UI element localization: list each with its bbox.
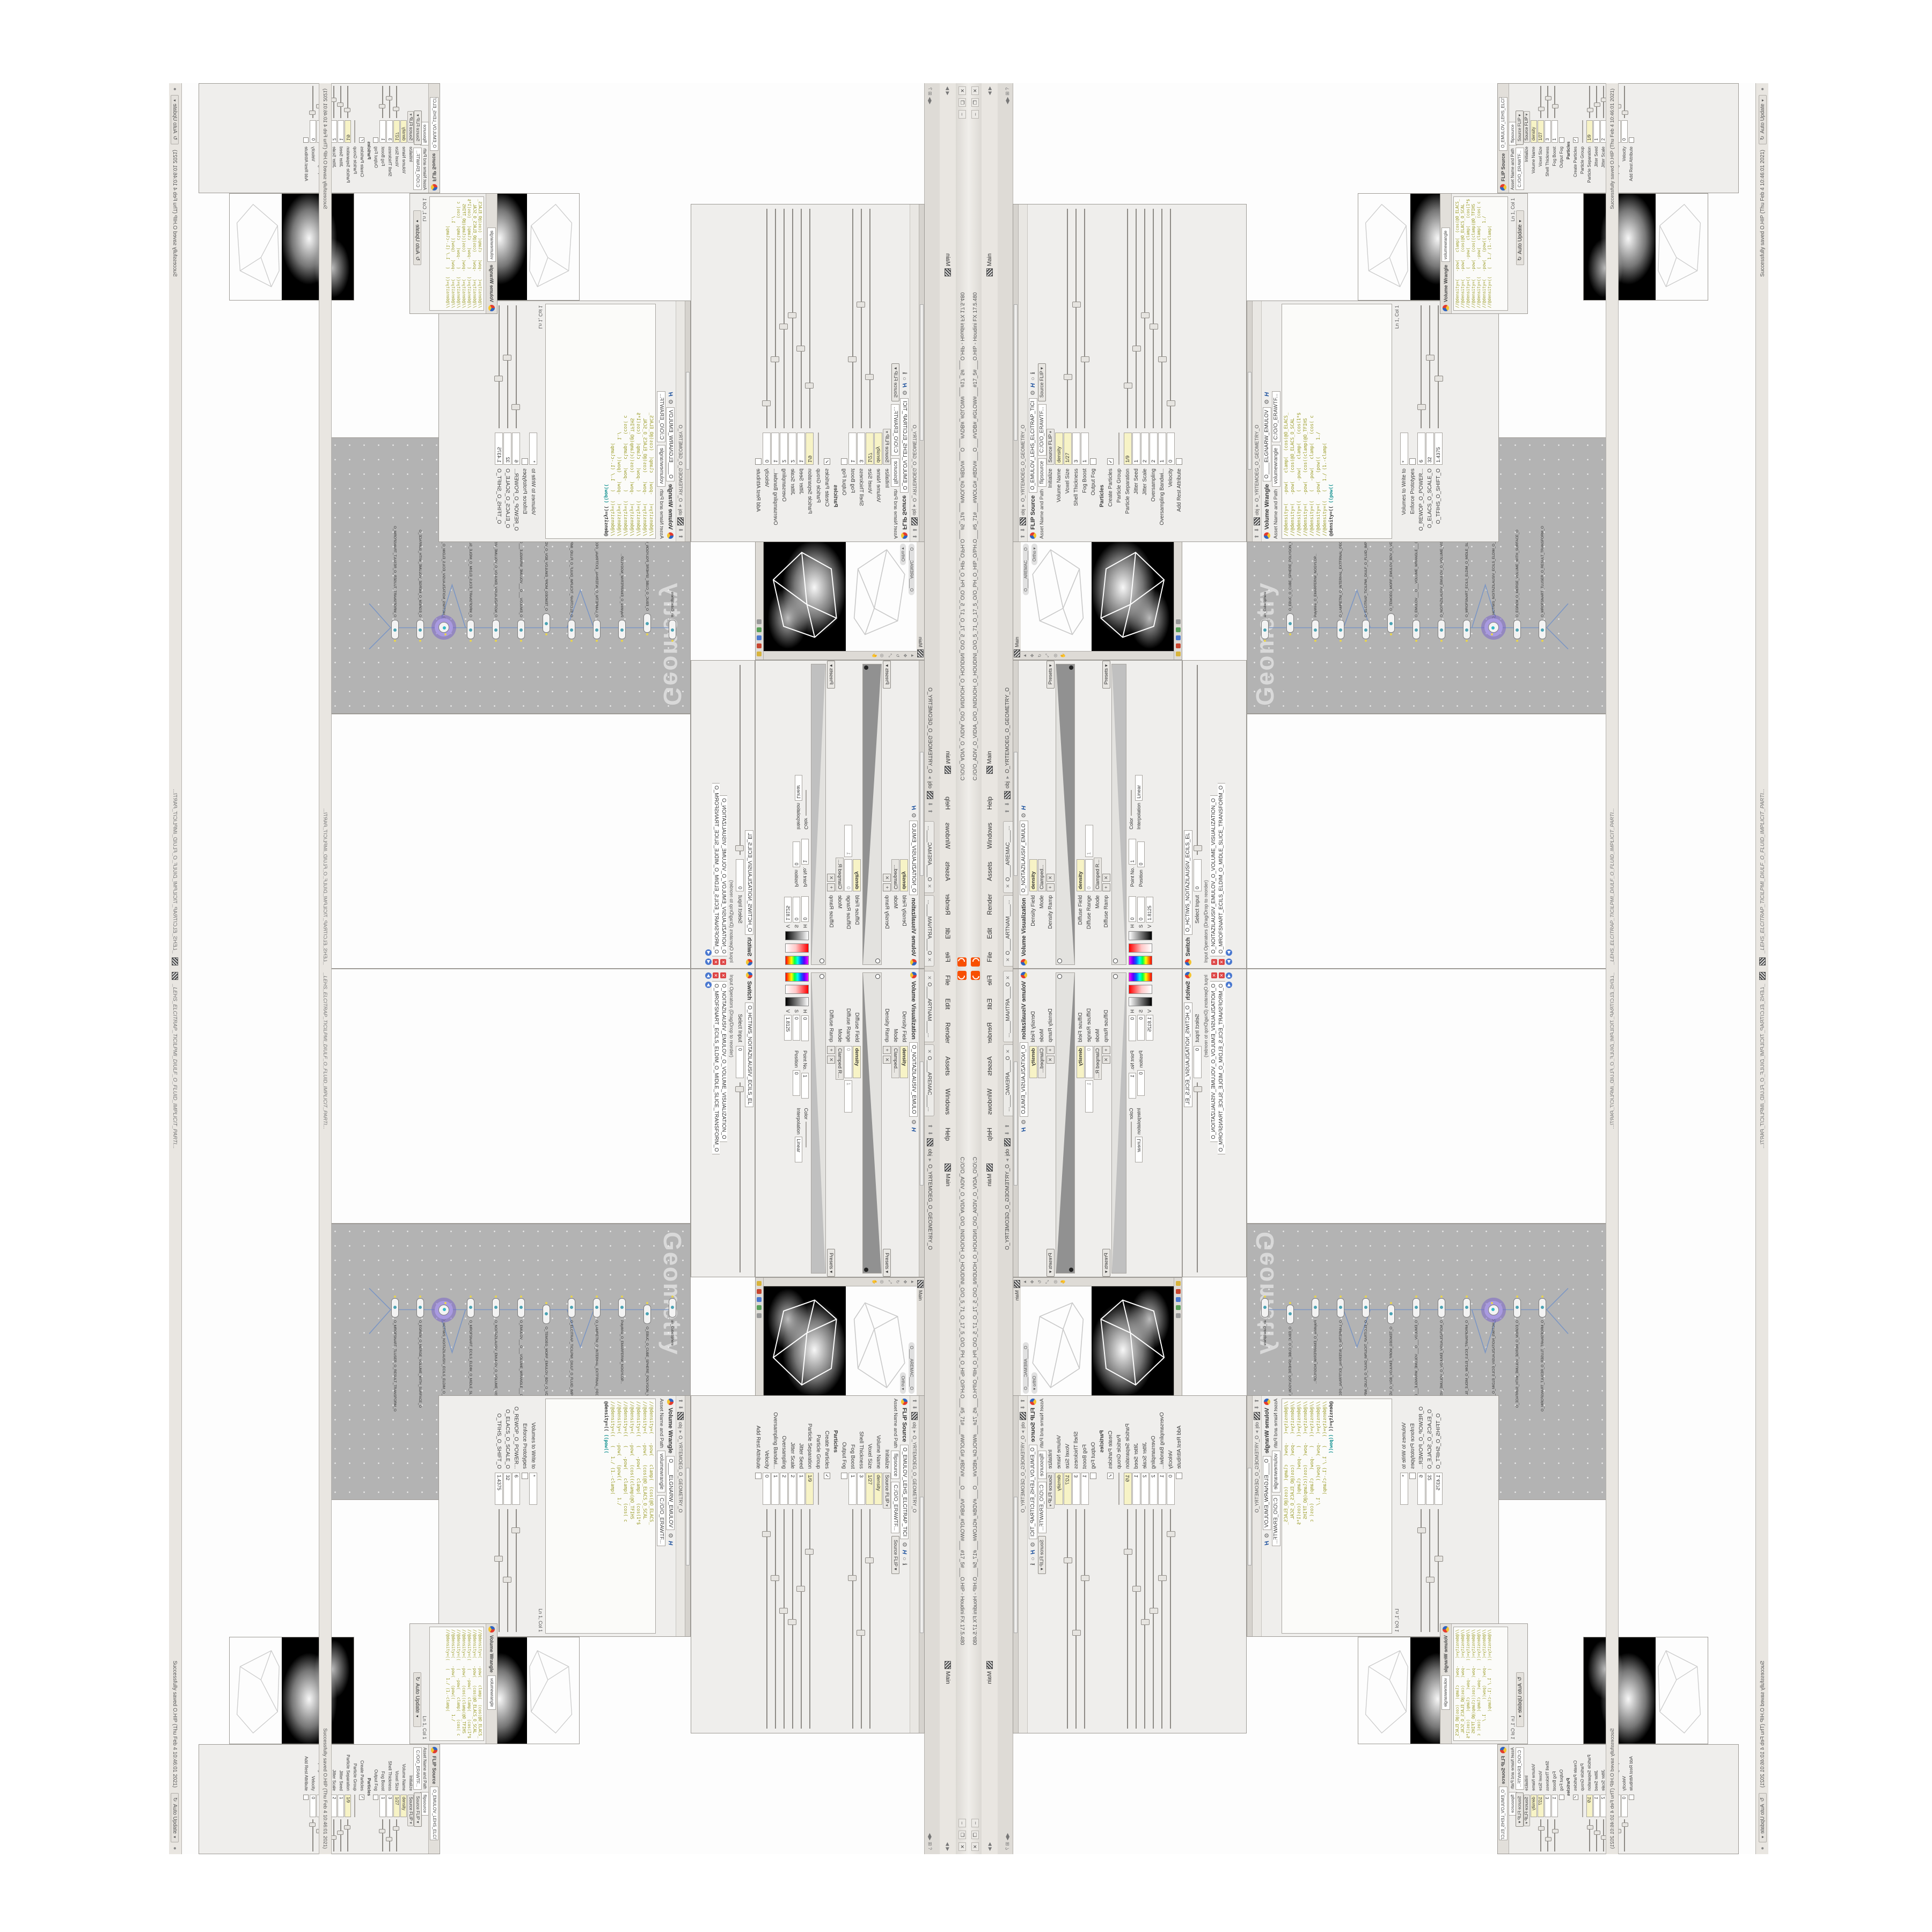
- nav-forward-icon[interactable]: ⬇: [1254, 1405, 1260, 1409]
- param-value[interactable]: 1: [772, 433, 780, 465]
- param-value[interactable]: 1: [849, 1473, 857, 1505]
- houdini-help-icon[interactable]: H: [902, 1550, 908, 1554]
- param-slider[interactable]: [806, 209, 814, 428]
- remove-input-icon[interactable]: ✕: [1211, 972, 1217, 978]
- close-tab-icon[interactable]: ✕: [926, 957, 932, 962]
- pane-breadcrumb[interactable]: ⬆ ⬇ obj ▸ O_YRTEMOEG_O_GEOMETRY_O: [676, 1396, 685, 1636]
- param-checkbox[interactable]: [824, 1473, 830, 1479]
- asset-path-field[interactable]: C:/O/O_ERAWTF...: [414, 1747, 422, 1790]
- param-slider[interactable]: [866, 209, 874, 428]
- param-slider[interactable]: [1593, 1819, 1600, 1851]
- breadcrumb[interactable]: ⬆ ⬇ obj ▸ O_YRTEMOEG_O_GEOMETRY_O: [925, 1124, 933, 1250]
- param-slider[interactable]: [789, 1509, 796, 1729]
- menu-item[interactable]: Assets: [986, 1050, 993, 1082]
- input-operator-item[interactable]: ✕ O_NOITAZILAUSIV_EMULOV_O_VOLUME_VISUAL…: [1210, 969, 1218, 1277]
- param-slider[interactable]: [1072, 1509, 1080, 1729]
- breadcrumb-node[interactable]: O_YRTEMOEG_O_GEOMETRY_O: [678, 1436, 683, 1513]
- node-name-field[interactable]: O_EMULOV_LEHS_ELCITRAP_TICI: [901, 398, 909, 493]
- param-slider[interactable]: [1072, 209, 1080, 428]
- instance-name-field[interactable]: volumewrangle: [1272, 1451, 1280, 1492]
- param-slider[interactable]: [858, 209, 865, 428]
- snap-icon[interactable]: [757, 652, 762, 656]
- param-value[interactable]: density: [1055, 433, 1063, 465]
- param-value[interactable]: 1/9: [1586, 120, 1593, 143]
- move-down-button[interactable]: ◀: [1226, 949, 1232, 956]
- presets-button[interactable]: Presets ▾: [828, 661, 836, 689]
- network-node[interactable]: an_CubeSphere: [669, 592, 676, 639]
- view-mode-selector[interactable]: Ortho ▾: [900, 544, 906, 565]
- param-slider[interactable]: [310, 1819, 317, 1851]
- param-slider[interactable]: [1064, 209, 1071, 428]
- param-value[interactable]: 1: [1158, 1473, 1166, 1505]
- param-value[interactable]: 3: [1545, 120, 1551, 143]
- grid-icon[interactable]: [1176, 1313, 1181, 1318]
- close-button[interactable]: ✕: [971, 86, 979, 95]
- param-checkbox[interactable]: [755, 458, 762, 465]
- select-icon[interactable]: [757, 1297, 762, 1302]
- breadcrumb[interactable]: ⬆ ⬇ obj ▸ O_YRTEMOEG_O_GEOMETRY_O: [1004, 1124, 1013, 1250]
- node-shape[interactable]: [1463, 620, 1470, 639]
- node-name-field[interactable]: O_EMULOV_LEHS_ELCITRAP_TICI: [430, 97, 438, 151]
- param-value[interactable]: 1: [1552, 1795, 1558, 1817]
- node-shape[interactable]: [543, 613, 550, 633]
- param-value[interactable]: 1: [338, 1795, 345, 1817]
- pane-breadcrumb[interactable]: ⬆ ⬇ obj ▸ O_YRTEMOEG_O_GEOMETRY_O: [910, 1396, 919, 1733]
- nav-back-icon[interactable]: ⬆: [1005, 1124, 1011, 1128]
- node-shape[interactable]: [391, 620, 399, 639]
- nav-forward-icon[interactable]: ⬇: [678, 528, 684, 532]
- close-button[interactable]: ✕: [958, 86, 966, 95]
- node-shape[interactable]: [1513, 1298, 1521, 1318]
- ramp-point-marker[interactable]: [1113, 974, 1118, 979]
- input-operator-item[interactable]: ✕ O_NOITAZILAUSIV_EMULOV_O_VOLUME_VISUAL…: [720, 969, 727, 1277]
- input-operator-item[interactable]: ✕ O_MROFSNART_ECILS_ELDIM_O_MIDLE_SLICE_…: [712, 661, 720, 968]
- param-value[interactable]: [1582, 120, 1583, 143]
- param-value[interactable]: 0: [1167, 1473, 1175, 1505]
- houdini-help-icon[interactable]: H: [1264, 1541, 1270, 1545]
- take-selector[interactable]: Main: [945, 253, 951, 276]
- param-value[interactable]: [355, 1795, 356, 1817]
- info-icon[interactable]: ℹ: [901, 372, 908, 374]
- nav-forward-icon[interactable]: ⬇: [1005, 1131, 1011, 1136]
- interpolation-value[interactable]: Linear: [1135, 775, 1143, 801]
- ramp-delete-point-button[interactable]: ✕: [1046, 874, 1055, 882]
- menu-item[interactable]: Edit: [986, 921, 993, 946]
- param-slider[interactable]: [504, 305, 511, 428]
- preset-dropdown[interactable]: Source FLIP ▾: [891, 363, 899, 401]
- nav-back-icon[interactable]: ⬆: [927, 1124, 933, 1128]
- breadcrumb-context[interactable]: obj: [678, 1422, 683, 1429]
- info-icon[interactable]: ℹ: [1029, 1563, 1036, 1565]
- param-slider[interactable]: [1551, 86, 1558, 118]
- breadcrumb-node[interactable]: O_YRTEMOEG_O_GEOMETRY_O: [1005, 687, 1011, 773]
- hue-strip[interactable]: [1129, 956, 1152, 965]
- param-value[interactable]: 1: [380, 1795, 386, 1817]
- param-slider[interactable]: [858, 1509, 865, 1729]
- pane-scrollbar[interactable]: [919, 969, 924, 1277]
- diffuse-ramp-widget[interactable]: [1111, 664, 1126, 965]
- pane-tab-camera[interactable]: ✕ O____AREMAC____...: [925, 1044, 934, 1116]
- pane-tab-mantra[interactable]: ✕ O____ARTNAM____...: [925, 895, 934, 967]
- ramp-delete-point-button[interactable]: ✕: [828, 1056, 836, 1064]
- param-value[interactable]: 0: [310, 1795, 317, 1817]
- network-node[interactable]: O_MROFSNART_TLUSER_O_RESULT_TRANSFORM_O: [391, 1298, 399, 1411]
- param-slider[interactable]: [1150, 1509, 1157, 1729]
- param-value[interactable]: Source FLIP: [1524, 1795, 1530, 1826]
- node-shape[interactable]: [1463, 1298, 1470, 1318]
- param-slider[interactable]: [1141, 1509, 1148, 1729]
- auto-update-selector[interactable]: ↻ Auto Update ▾: [1759, 95, 1767, 144]
- close-button[interactable]: ✕: [971, 1842, 979, 1851]
- density-ramp-widget[interactable]: [1056, 972, 1075, 1274]
- asset-path-field[interactable]: C:/O/O_ERAWTF...: [1038, 404, 1046, 456]
- node-name-field[interactable]: O_EMULOV_LEHS_ELCITRAP_TICI: [1029, 1445, 1037, 1539]
- move-down-button[interactable]: ◀: [705, 949, 712, 956]
- node-shape[interactable]: [416, 620, 424, 639]
- input-operator-item[interactable]: ✕ O_MROFSNART_ECILS_ELDIM_O_MIDLE_SLICE_…: [1218, 661, 1225, 968]
- density-field-value[interactable]: density: [901, 859, 909, 891]
- restore-button[interactable]: ❐: [958, 98, 966, 107]
- param-value[interactable]: [1118, 433, 1119, 465]
- param-value[interactable]: 1/27: [1538, 1795, 1544, 1817]
- remove-input-icon[interactable]: ✕: [1211, 959, 1217, 965]
- density-ramp-widget[interactable]: [862, 664, 882, 965]
- diffuse-range-min[interactable]: 0: [1085, 1046, 1093, 1078]
- handles-icon[interactable]: [757, 1305, 762, 1310]
- asset-path-field[interactable]: C:/O/O_ERAWTF...: [1516, 148, 1524, 190]
- pane-tab-camera[interactable]: ✕ O____AREMAC____...: [925, 821, 934, 893]
- param-checkbox[interactable]: [304, 137, 309, 143]
- h-value[interactable]: 0: [801, 1015, 809, 1041]
- param-slider[interactable]: [1141, 209, 1148, 428]
- param-slider[interactable]: [1124, 209, 1131, 428]
- param-value[interactable]: density: [1531, 120, 1537, 143]
- vex-snippet-editor[interactable]: //@density=( -pow( clamp( (cos(@O_ELACS_…: [1282, 1399, 1392, 1634]
- interpolation-value[interactable]: Linear: [795, 1137, 802, 1162]
- pane-breadcrumb[interactable]: ⬆ ⬇ obj ▸ O_YRTEMOEG_O_GEOMETRY_O: [910, 204, 919, 541]
- asset-path-field[interactable]: C:/O/O_ERAWTF...: [1272, 1495, 1280, 1547]
- s-value[interactable]: 0: [1137, 1015, 1145, 1041]
- node-shape[interactable]: [1438, 620, 1445, 639]
- pane-scrollbar[interactable]: [685, 301, 690, 541]
- node-name-field[interactable]: O____ELGNARW_EMULOV: [667, 1456, 675, 1530]
- menu-item[interactable]: Windows: [986, 1082, 993, 1121]
- asset-path-field[interactable]: C:/O/O_ERAWTF...: [657, 391, 666, 443]
- pane-header[interactable]: Volume Wrangle volumewrangle: [1440, 1624, 1452, 1744]
- param-value[interactable]: 1: [1158, 433, 1166, 465]
- network-node[interactable]: an_CubeSphere: [1261, 1298, 1269, 1345]
- param-slider[interactable]: [797, 1509, 805, 1729]
- viewport-canvas[interactable]: O____AREMAC____O Ortho ▾: [1021, 541, 1174, 651]
- param-value[interactable]: 1.4375: [1435, 433, 1443, 465]
- param-value[interactable]: 2: [780, 1473, 788, 1505]
- minimize-button[interactable]: –: [971, 1819, 979, 1827]
- v-value[interactable]: 1.8125: [784, 897, 792, 923]
- param-value[interactable]: density: [1055, 1473, 1063, 1505]
- camera-selector[interactable]: O____AREMAC____O: [909, 544, 914, 595]
- density-field-value[interactable]: density: [901, 1046, 909, 1078]
- preset-dropdown[interactable]: Source FLIP ▾: [1516, 1792, 1524, 1827]
- param-checkbox[interactable]: [1090, 458, 1096, 465]
- menu-item[interactable]: Render: [944, 888, 952, 921]
- network-node[interactable]: O_EMULOV___O___VOLUME_WRANGLE___02: [1413, 539, 1420, 639]
- param-value[interactable]: Source FLIP: [1046, 1473, 1055, 1509]
- houdini-help-icon[interactable]: H: [911, 1128, 917, 1132]
- param-value[interactable]: 6: [1417, 433, 1425, 465]
- menu-item[interactable]: File: [986, 969, 993, 992]
- network-node[interactable]: O_EGREM_O_MERGE_VOLUME_WITH_SURFACE_O: [1513, 1298, 1521, 1408]
- pane-scrollbar[interactable]: [1013, 1396, 1019, 1733]
- param-value[interactable]: 1/27: [1064, 433, 1072, 465]
- ramp-delete-point-button[interactable]: ✕: [1046, 1056, 1055, 1064]
- preset-dropdown[interactable]: Source FLIP ▾: [1038, 1536, 1046, 1574]
- node-name-field[interactable]: O_EMULOV_LEHS_ELCITRAP_TICI: [901, 1445, 909, 1539]
- ramp-point-marker[interactable]: [1069, 665, 1073, 670]
- param-value[interactable]: 1: [849, 433, 857, 465]
- param-value[interactable]: [818, 1473, 819, 1505]
- restore-button[interactable]: ❐: [958, 1831, 966, 1839]
- menu-item[interactable]: Assets: [944, 1050, 952, 1082]
- viewport-left-toolbar[interactable]: ▲✥↻⤢◎✋: [763, 651, 917, 660]
- remove-input-icon[interactable]: ✕: [713, 959, 719, 965]
- param-checkbox[interactable]: [374, 1795, 379, 1800]
- node-shape[interactable]: [669, 620, 676, 639]
- nav-forward-icon[interactable]: ⬇: [927, 1131, 933, 1136]
- param-value[interactable]: Source FLIP: [1524, 111, 1530, 143]
- remove-input-icon[interactable]: ✕: [721, 959, 727, 965]
- diffuse-ramp-widget[interactable]: [811, 972, 826, 1274]
- param-slider[interactable]: [495, 305, 503, 428]
- remove-input-icon[interactable]: ✕: [1219, 959, 1225, 965]
- breadcrumb-node[interactable]: O_YRTEMOEG_O_GEOMETRY_O: [1254, 1436, 1260, 1513]
- node-shape[interactable]: [618, 620, 626, 639]
- menu-item[interactable]: Windows: [944, 816, 952, 855]
- vex-snippet-editor[interactable]: //@density=( -pow( clamp( (cos(@O_ELACS_…: [545, 1399, 656, 1634]
- param-checkbox[interactable]: [1559, 137, 1564, 143]
- gear-icon[interactable]: ⚙: [1020, 1119, 1027, 1125]
- breadcrumb-node[interactable]: O_YRTEMOEG_O_GEOMETRY_O: [1005, 1164, 1011, 1250]
- param-value[interactable]: 1: [1081, 1473, 1089, 1505]
- presets-button[interactable]: Presets ▾: [1046, 661, 1055, 689]
- nav-back-icon[interactable]: ⬆: [1020, 535, 1026, 539]
- param-checkbox[interactable]: [824, 458, 830, 465]
- restore-button[interactable]: ❐: [971, 1831, 979, 1839]
- mode-dropdown[interactable]: Clamped R...: [836, 858, 844, 891]
- take-selector[interactable]: Main: [986, 253, 993, 276]
- param-checkbox[interactable]: [841, 458, 847, 465]
- menu-item[interactable]: Render: [986, 1016, 993, 1050]
- ramp-point-marker[interactable]: [1113, 958, 1118, 963]
- param-slider[interactable]: [338, 1819, 345, 1851]
- param-value[interactable]: density: [875, 433, 883, 465]
- asset-path-field[interactable]: C:/O/O_ERAWTF...: [657, 1495, 666, 1547]
- vex-snippet-editor[interactable]: //@density=( -pow( clamp( (cos(@O_ELACS_…: [1282, 304, 1392, 539]
- param-slider[interactable]: [849, 209, 857, 428]
- param-slider[interactable]: [1551, 1819, 1558, 1851]
- node-name-field[interactable]: O_NOITAZILAUSIV_EMULO: [910, 821, 918, 895]
- pane-header[interactable]: Volume Wrangle volumewrangle: [1440, 194, 1452, 313]
- pane-scrollbar[interactable]: [919, 1396, 924, 1733]
- param-value[interactable]: 32: [1426, 433, 1434, 465]
- param-value[interactable]: 1.4375: [495, 433, 503, 465]
- ramp-point-marker[interactable]: [864, 665, 868, 670]
- network-node[interactable]: PolyWire_O_EMARFERIW_NOGYLOP...: [618, 1298, 626, 1384]
- ramp-add-point-button[interactable]: +: [1046, 1046, 1055, 1054]
- smoke-viewport-tile[interactable]: [229, 193, 354, 301]
- node-name-field[interactable]: O_HCTIWS_NOITAZILAUSIV_ECILS_EL: [1184, 830, 1192, 935]
- param-checkbox[interactable]: [1573, 137, 1578, 143]
- node-shape[interactable]: [568, 1298, 575, 1318]
- breadcrumb-context[interactable]: obj: [1020, 1422, 1026, 1429]
- move-up-button[interactable]: ◀: [1226, 972, 1232, 979]
- point-no-value[interactable]: 1: [801, 1073, 809, 1099]
- view-mode-selector[interactable]: Ortho ▾: [1031, 544, 1037, 565]
- preset-dropdown[interactable]: Source FLIP ▾: [891, 1536, 899, 1574]
- breadcrumb-node[interactable]: O_YRTEMOEG_O_GEOMETRY_O: [927, 687, 933, 773]
- grid-icon[interactable]: [757, 619, 762, 624]
- ramp-point-marker[interactable]: [864, 1268, 868, 1272]
- ramp-delete-point-button[interactable]: ✕: [883, 1056, 891, 1064]
- node-shape[interactable]: [1413, 1298, 1420, 1318]
- magnifier-icon[interactable]: ○: [902, 377, 908, 380]
- menu-item[interactable]: Windows: [986, 816, 993, 855]
- node-shape[interactable]: [517, 1298, 525, 1318]
- diffuse-range-max[interactable]: 1: [845, 825, 853, 857]
- breadcrumb-context[interactable]: obj: [1020, 509, 1026, 515]
- close-tab-icon[interactable]: ✕: [1005, 884, 1011, 888]
- diffuse-field-value[interactable]: density: [853, 1046, 861, 1078]
- hue-strip[interactable]: [785, 972, 809, 982]
- param-slider[interactable]: [1621, 1819, 1628, 1851]
- ramp-point-marker[interactable]: [1069, 1268, 1073, 1272]
- menu-item[interactable]: Assets: [986, 855, 993, 888]
- handles-icon[interactable]: [1176, 1305, 1181, 1310]
- param-slider[interactable]: [1132, 209, 1140, 428]
- node-shape[interactable]: [618, 1298, 626, 1318]
- menu-item[interactable]: File: [944, 946, 952, 969]
- houdini-help-icon[interactable]: H: [668, 1541, 674, 1545]
- param-value[interactable]: 2: [1150, 433, 1158, 465]
- pane-scrollbar[interactable]: [1013, 969, 1019, 1277]
- ramp-add-point-button[interactable]: +: [1102, 1046, 1110, 1054]
- h-value[interactable]: 0: [1129, 897, 1136, 923]
- mode-dropdown[interactable]: Clamped...: [1038, 859, 1046, 891]
- pane-header[interactable]: Volume Wrangle volumewrangle: [486, 194, 497, 313]
- param-value[interactable]: 0: [1167, 433, 1175, 465]
- pane-tab-mantra[interactable]: ✕ O____ARTNAM____...: [925, 971, 934, 1042]
- preset-dropdown[interactable]: Source FLIP ▾: [414, 1792, 422, 1827]
- volumes-value[interactable]: *: [1400, 1473, 1408, 1505]
- node-shape[interactable]: [438, 1305, 449, 1315]
- param-value[interactable]: 1: [1552, 120, 1558, 143]
- mode-dropdown[interactable]: Clamped...: [892, 859, 900, 891]
- breadcrumb-context[interactable]: obj: [927, 781, 933, 788]
- h-value[interactable]: 0: [801, 897, 809, 923]
- node-shape[interactable]: [1387, 613, 1395, 633]
- gear-icon[interactable]: ⚙: [901, 1542, 908, 1547]
- param-checkbox[interactable]: [360, 1795, 365, 1800]
- param-value[interactable]: 1/9: [806, 433, 814, 465]
- node-name-field[interactable]: O_EMULOV_LEHS_ELCITRAP_TICI: [1029, 398, 1037, 493]
- breadcrumb-node[interactable]: O_YRTEMOEG_O_GEOMETRY_O: [1254, 425, 1260, 502]
- houdini-help-icon[interactable]: H: [911, 806, 917, 810]
- breadcrumb-node[interactable]: O_YRTEMOEG_O_GEOMETRY_O: [1020, 1436, 1026, 1513]
- param-value[interactable]: 0: [310, 120, 317, 143]
- auto-update-selector[interactable]: ↻ Auto Update ▾: [1516, 1672, 1524, 1727]
- auto-update-selector[interactable]: ↻ Auto Update ▾: [171, 1793, 179, 1842]
- title-bar[interactable]: C:/O/O_ADIV_O_VIDIA_O/O_INIDUOH_O_HOUDIN…: [969, 83, 982, 969]
- param-slider[interactable]: [1158, 209, 1166, 428]
- pane-split-icons[interactable]: ◀▶ ⊞ ?: [925, 1833, 933, 1850]
- diffuse-ramp-widget[interactable]: [1111, 972, 1126, 1274]
- viewport-left-toolbar[interactable]: ▲✥↻⤢◎✋: [763, 1278, 917, 1286]
- param-value[interactable]: 1/27: [394, 120, 400, 143]
- param-slider[interactable]: [1537, 86, 1545, 118]
- value-strip[interactable]: [785, 997, 809, 1006]
- param-checkbox[interactable]: [1573, 1795, 1578, 1800]
- diffuse-ramp-widget[interactable]: [811, 664, 826, 965]
- pane-breadcrumb[interactable]: ⬆ ⬇ obj ▸ O_YRTEMOEG_O_GEOMETRY_O: [676, 301, 685, 541]
- param-value[interactable]: 0: [1621, 1795, 1628, 1817]
- presets-button[interactable]: Presets ▾: [1046, 1249, 1055, 1277]
- param-slider[interactable]: [789, 209, 796, 428]
- param-slider[interactable]: [1081, 1509, 1088, 1729]
- param-value[interactable]: 1/27: [1064, 1473, 1072, 1505]
- render-icon[interactable]: [1176, 643, 1181, 648]
- houdini-help-icon[interactable]: H: [1030, 1550, 1036, 1554]
- param-slider[interactable]: [772, 209, 779, 428]
- snap-icon[interactable]: [757, 1281, 762, 1286]
- v-value[interactable]: 1.8125: [1146, 1015, 1153, 1041]
- node-shape[interactable]: [467, 620, 474, 639]
- nav-forward-icon[interactable]: ⬇: [1254, 528, 1260, 532]
- param-slider[interactable]: [1586, 86, 1593, 118]
- param-slider[interactable]: [866, 1509, 874, 1729]
- auto-update-selector[interactable]: ↻ Auto Update ▾: [171, 95, 179, 144]
- param-value[interactable]: 3: [1072, 1473, 1080, 1505]
- param-slider[interactable]: [1586, 1819, 1593, 1851]
- param-slider[interactable]: [1593, 86, 1600, 118]
- v-value[interactable]: 1.8125: [784, 1015, 792, 1041]
- param-value[interactable]: 3: [858, 433, 866, 465]
- remove-input-icon[interactable]: ✕: [1219, 972, 1225, 978]
- volumes-value[interactable]: *: [530, 1473, 538, 1505]
- network-node[interactable]: PolyWire_O_EMARFERIW_NOGYLOP...: [1312, 1298, 1319, 1384]
- node-name-field[interactable]: O_HCTIWS_NOITAZILAUSIV_ECILS_EL: [1184, 1002, 1192, 1107]
- param-slider[interactable]: [1544, 1819, 1552, 1851]
- node-shape[interactable]: [1337, 1298, 1344, 1318]
- instance-name-field[interactable]: volumewrangle: [657, 1451, 666, 1492]
- param-slider[interactable]: [513, 1509, 520, 1632]
- param-value[interactable]: 1/27: [394, 1795, 400, 1817]
- param-slider[interactable]: [1194, 665, 1201, 855]
- move-down-button[interactable]: ◀: [1226, 982, 1232, 988]
- param-value[interactable]: Source FLIP: [883, 1473, 891, 1509]
- grid-icon[interactable]: [1176, 619, 1181, 624]
- value-strip[interactable]: [1129, 997, 1152, 1006]
- presets-button[interactable]: Presets ▾: [883, 661, 891, 689]
- param-value[interactable]: 1: [380, 120, 386, 143]
- pane-tab-mantra[interactable]: ✕ O____ARTNAM____...: [1003, 971, 1013, 1042]
- param-value[interactable]: 3: [1072, 433, 1080, 465]
- menu-item[interactable]: Edit: [944, 921, 952, 946]
- render-icon[interactable]: [757, 1289, 762, 1294]
- param-checkbox[interactable]: [1409, 1473, 1416, 1479]
- close-button[interactable]: ✕: [958, 1842, 966, 1851]
- viewport-left-toolbar[interactable]: ▲✥↻⤢◎✋: [1021, 651, 1174, 660]
- diffuse-range-max[interactable]: 1: [845, 1080, 853, 1113]
- param-slider[interactable]: [1426, 305, 1433, 428]
